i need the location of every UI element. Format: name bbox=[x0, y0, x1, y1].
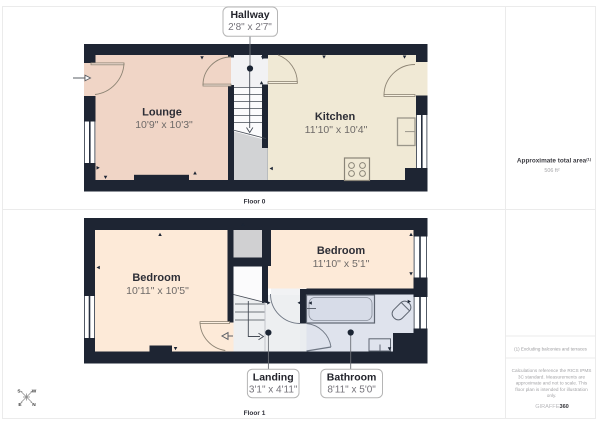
svg-text:10'11" x 10'5": 10'11" x 10'5" bbox=[126, 285, 189, 297]
svg-text:11'10" x 10'4": 11'10" x 10'4" bbox=[305, 124, 368, 136]
svg-text:W: W bbox=[32, 388, 37, 394]
svg-text:506 ft²: 506 ft² bbox=[544, 168, 559, 174]
svg-text:Floor 1: Floor 1 bbox=[244, 410, 266, 417]
svg-text:11'10" x 5'1": 11'10" x 5'1" bbox=[313, 258, 370, 270]
svg-text:3C standard. Measurements are: 3C standard. Measurements are bbox=[518, 374, 586, 379]
svg-text:3'1" x 4'11": 3'1" x 4'11" bbox=[249, 384, 298, 395]
svg-text:Hallway: Hallway bbox=[230, 9, 269, 21]
svg-text:Bathroom: Bathroom bbox=[327, 371, 377, 383]
svg-text:approximate and not to scale.: approximate and not to scale. This bbox=[516, 381, 588, 386]
svg-text:GIRAFFE360: GIRAFFE360 bbox=[535, 404, 569, 410]
svg-text:N: N bbox=[32, 402, 36, 408]
svg-text:Floor 0: Floor 0 bbox=[244, 199, 266, 206]
svg-text:Lounge: Lounge bbox=[142, 107, 182, 119]
svg-text:2'8" x 2'7": 2'8" x 2'7" bbox=[228, 22, 272, 33]
svg-text:Bedroom: Bedroom bbox=[317, 245, 366, 257]
svg-text:Bedroom: Bedroom bbox=[132, 272, 181, 284]
svg-text:Calculations reference the RIC: Calculations reference the RICS IPMS bbox=[512, 368, 592, 373]
svg-text:(1) Excluding balconies and te: (1) Excluding balconies and terraces bbox=[514, 347, 588, 352]
svg-text:only.: only. bbox=[547, 393, 557, 398]
svg-text:Landing: Landing bbox=[253, 371, 294, 383]
svg-text:floor plan is intended for ill: floor plan is intended for illustration bbox=[515, 387, 588, 392]
svg-text:8'11" x 5'0": 8'11" x 5'0" bbox=[327, 384, 376, 395]
svg-text:Kitchen: Kitchen bbox=[315, 111, 356, 123]
svg-text:10'9" x 10'3": 10'9" x 10'3" bbox=[135, 119, 193, 131]
svg-text:Approximate total area(1): Approximate total area(1) bbox=[517, 157, 592, 165]
